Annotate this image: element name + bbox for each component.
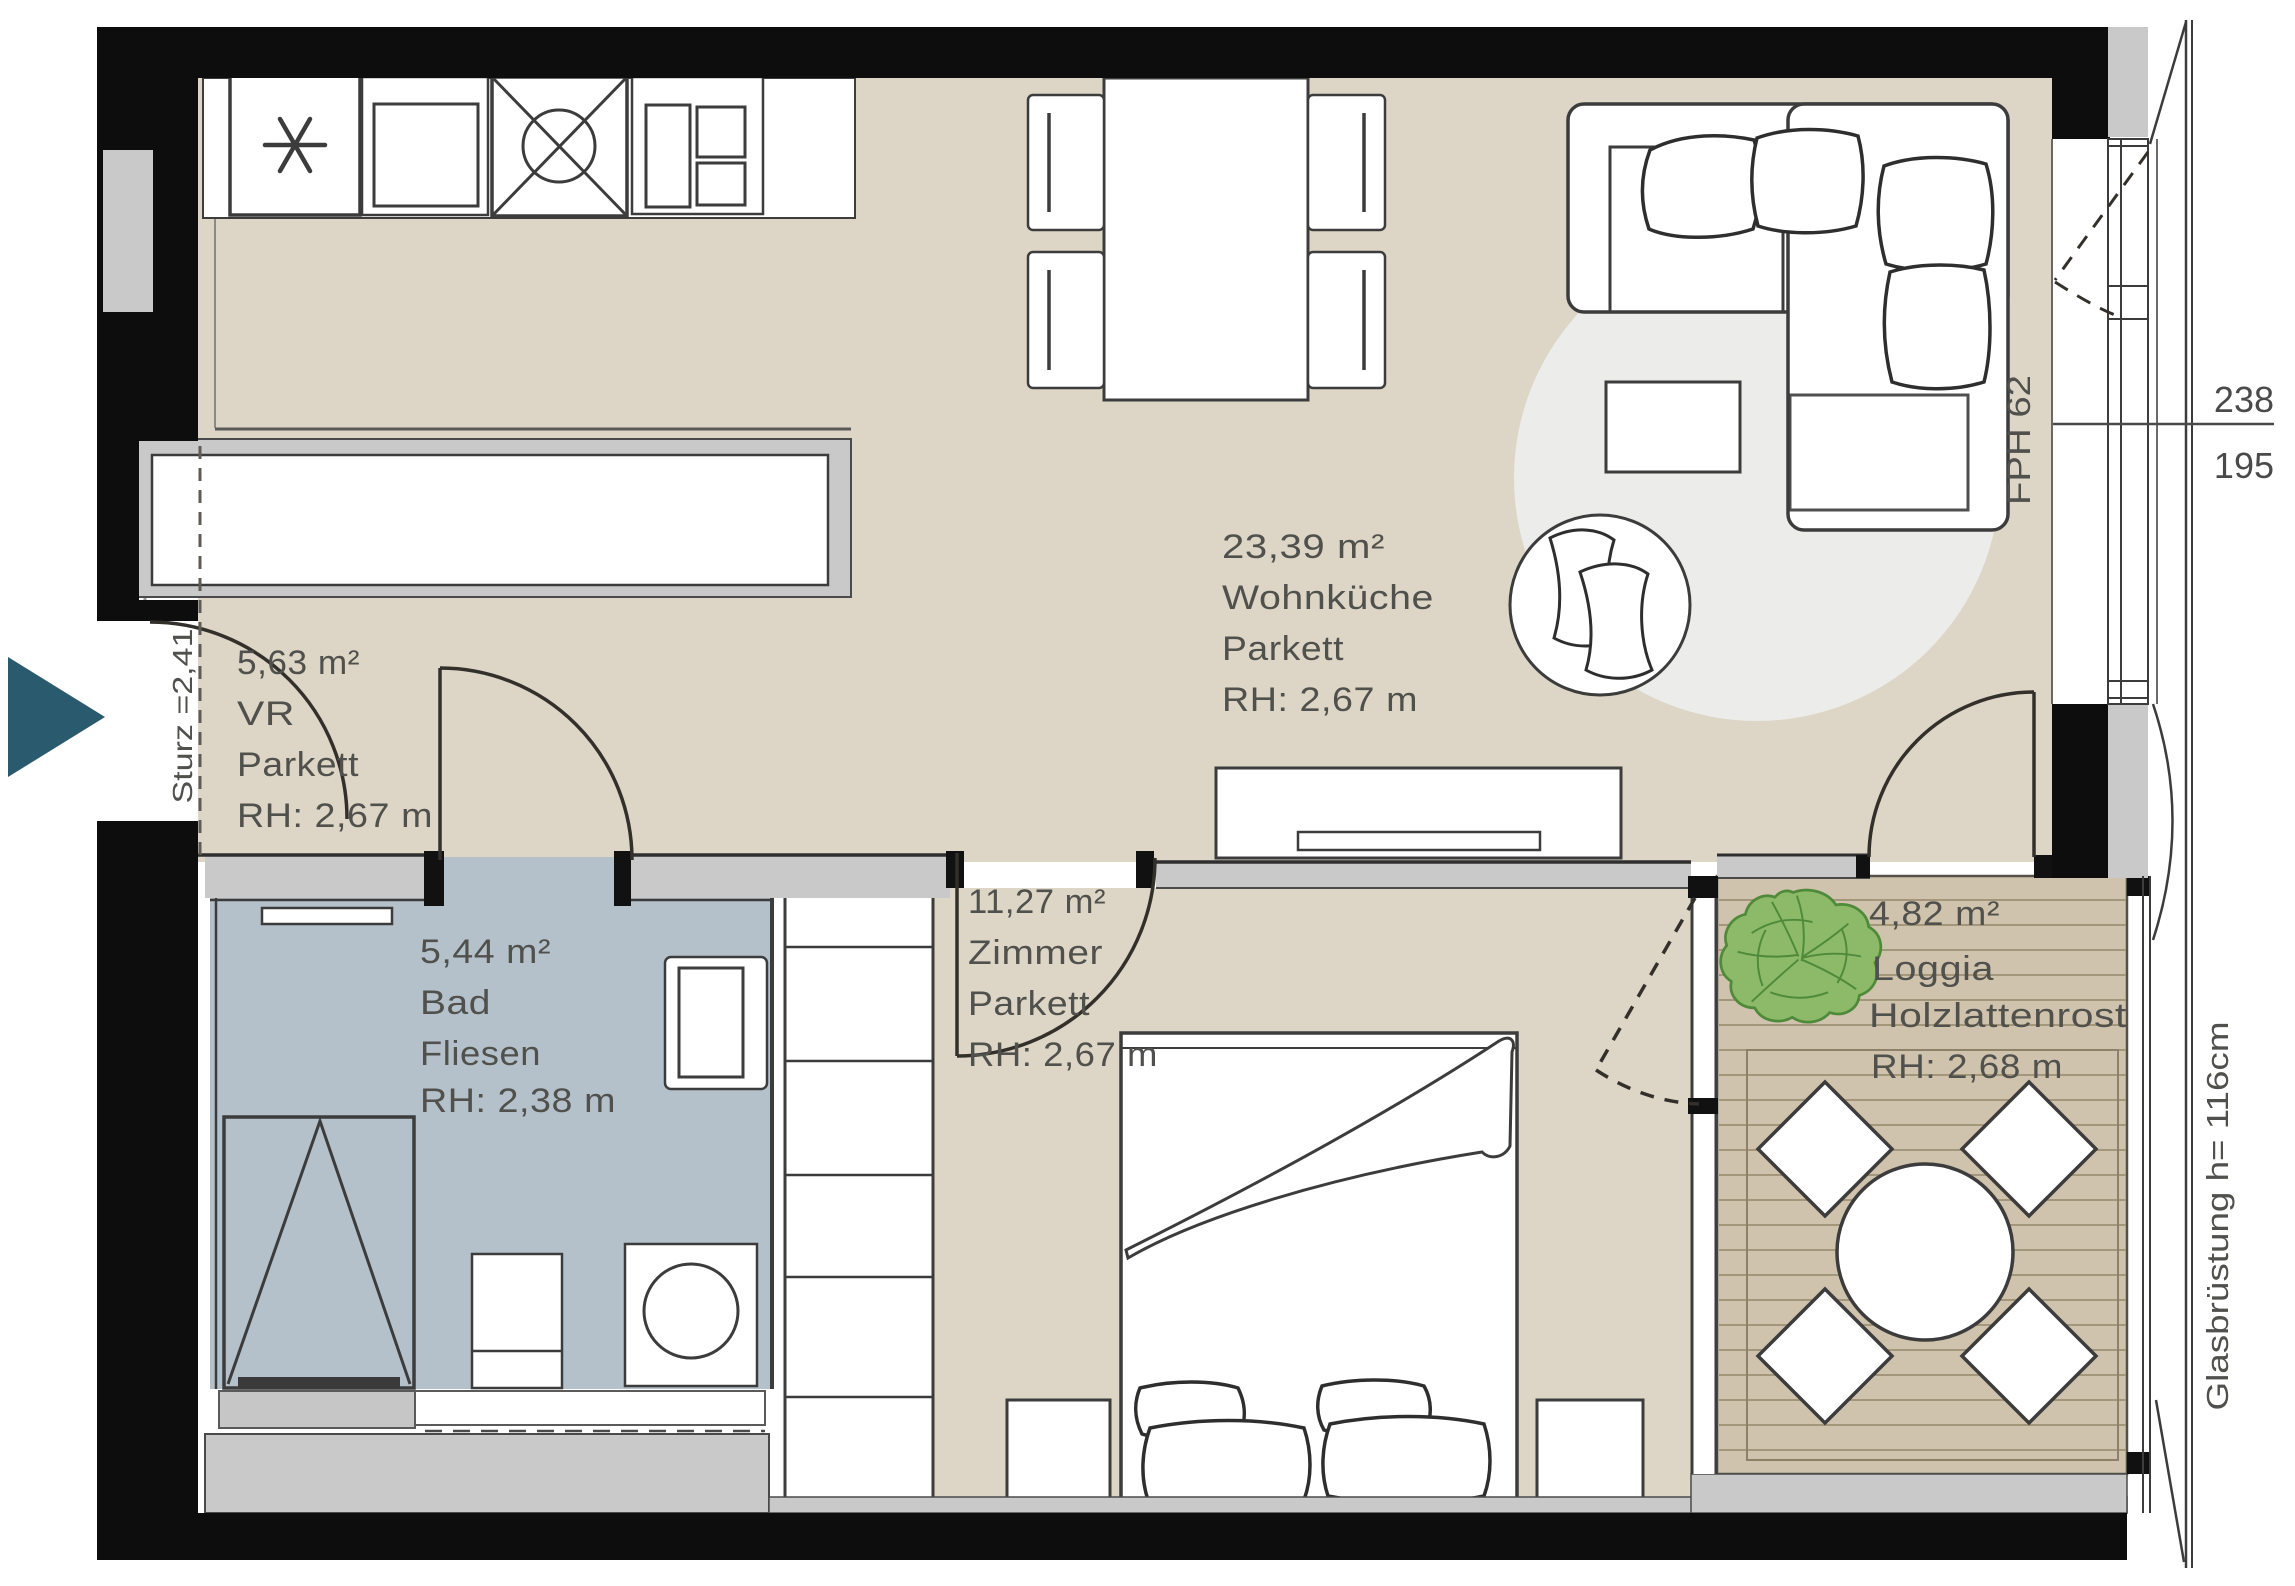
svg-text:Glasbrüstung h= 116cm: Glasbrüstung h= 116cm	[2200, 1022, 2235, 1411]
svg-text:RH: 2,38 m: RH: 2,38 m	[420, 1082, 616, 1120]
svg-text:Parkett: Parkett	[237, 746, 359, 784]
svg-text:Zimmer: Zimmer	[968, 934, 1103, 972]
svg-text:RH: 2,68 m: RH: 2,68 m	[1871, 1048, 2063, 1086]
svg-text:11,27 m²: 11,27 m²	[968, 883, 1106, 921]
svg-text:Holzlattenrost: Holzlattenrost	[1869, 997, 2127, 1035]
svg-text:Wohnküche: Wohnküche	[1222, 579, 1434, 617]
svg-text:VR: VR	[237, 695, 295, 733]
svg-text:Loggia: Loggia	[1872, 950, 1994, 988]
svg-text:Parkett: Parkett	[968, 985, 1090, 1023]
svg-text:RH: 2,67 m: RH: 2,67 m	[1222, 681, 1418, 719]
svg-text:238: 238	[2214, 379, 2274, 420]
svg-text:5,63 m²: 5,63 m²	[237, 644, 360, 682]
svg-text:FPH 62: FPH 62	[2001, 375, 2037, 505]
svg-text:Fliesen: Fliesen	[420, 1035, 541, 1073]
svg-text:4,82 m²: 4,82 m²	[1869, 895, 2000, 933]
svg-text:RH: 2,67 m: RH: 2,67 m	[968, 1036, 1158, 1074]
svg-text:23,39 m²: 23,39 m²	[1222, 528, 1385, 566]
svg-text:RH: 2,67 m: RH: 2,67 m	[237, 797, 433, 835]
svg-text:Bad: Bad	[420, 984, 491, 1022]
svg-text:5,44 m²: 5,44 m²	[420, 933, 551, 971]
svg-text:Sturz =2,41: Sturz =2,41	[167, 629, 198, 804]
svg-text:Parkett: Parkett	[1222, 630, 1344, 668]
svg-text:195: 195	[2214, 445, 2274, 486]
